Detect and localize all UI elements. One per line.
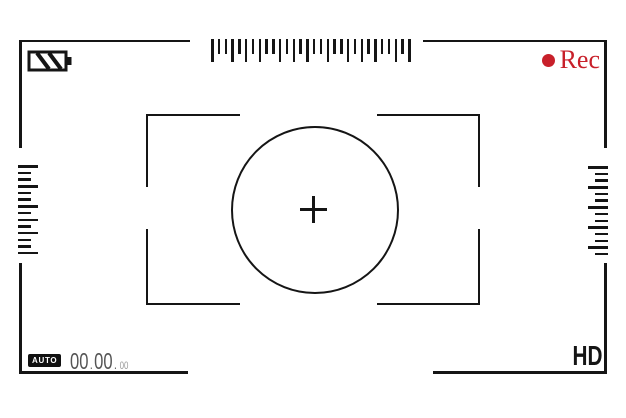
ruler-tick	[18, 178, 31, 181]
ruler-tick	[588, 166, 608, 169]
ruler-tick	[408, 39, 411, 62]
timecode-seconds: 00	[120, 360, 129, 372]
ruler-tick	[595, 193, 608, 196]
outer-bracket-bottom-right-vertical	[604, 263, 607, 374]
ruler-tick	[272, 39, 275, 54]
ruler-tick	[401, 39, 404, 54]
timecode-hours: 00	[70, 348, 88, 374]
outer-bracket-top-left-horizontal	[19, 40, 190, 43]
ruler-tick	[286, 39, 289, 54]
ruler-tick	[18, 225, 31, 228]
ruler-tick	[595, 179, 608, 182]
focus-bracket-top-right-horizontal	[377, 114, 480, 116]
battery-icon	[27, 49, 73, 78]
ruler-tick	[588, 246, 608, 249]
ruler-tick	[299, 39, 302, 54]
ruler-tick	[340, 39, 343, 54]
ruler-tick	[588, 206, 608, 209]
ruler-tick	[361, 39, 364, 62]
ruler-tick	[388, 39, 391, 54]
ruler-tick	[293, 39, 296, 62]
ruler-tick	[595, 220, 608, 223]
focus-bracket-bottom-right-vertical	[478, 229, 480, 305]
auto-mode-badge[interactable]: AUTO	[28, 354, 61, 367]
focus-bracket-top-right-vertical	[478, 114, 480, 187]
crosshair-vertical-bar	[312, 196, 314, 223]
ruler-tick	[259, 39, 262, 62]
ruler-tick	[347, 39, 350, 62]
ruler-tick	[18, 165, 38, 168]
ruler-tick	[18, 252, 38, 255]
ruler-tick	[252, 39, 255, 54]
ruler-tick	[595, 233, 608, 236]
ruler-tick	[231, 39, 234, 62]
ruler-tick	[588, 226, 608, 229]
timecode-separator: .	[90, 356, 93, 372]
ruler-tick	[595, 213, 608, 216]
focus-bracket-bottom-right-horizontal	[377, 303, 480, 305]
ruler-tick	[18, 245, 31, 248]
ruler-tick	[333, 39, 336, 54]
ruler-tick	[18, 232, 38, 235]
left-tick-scale	[18, 165, 38, 254]
ruler-tick	[225, 39, 228, 54]
ruler-tick	[18, 185, 38, 188]
focus-bracket-bottom-left-vertical	[146, 229, 148, 305]
ruler-tick	[18, 239, 31, 242]
outer-bracket-bottom-left-vertical	[19, 263, 22, 374]
ruler-tick	[245, 39, 248, 62]
outer-bracket-top-right-horizontal	[423, 40, 607, 43]
rec-label: Rec	[560, 47, 600, 73]
focus-bracket-top-left-vertical	[146, 114, 148, 187]
rec-indicator[interactable]: Rec	[542, 47, 600, 73]
ruler-tick	[211, 39, 214, 62]
timecode-minutes: 00	[94, 348, 112, 374]
ruler-tick	[306, 39, 309, 62]
ruler-tick	[374, 39, 377, 62]
crosshair-icon	[300, 196, 327, 223]
outer-bracket-top-right-vertical	[604, 40, 607, 148]
ruler-tick	[18, 172, 31, 175]
ruler-tick	[327, 39, 330, 62]
ruler-tick	[320, 39, 323, 54]
right-tick-scale	[588, 166, 608, 255]
ruler-tick	[18, 205, 38, 208]
viewfinder-screen: Rec AUTO 00.00.00 HD	[0, 0, 626, 418]
focus-bracket-top-left-horizontal	[146, 114, 240, 116]
ruler-tick	[395, 39, 398, 62]
focus-bracket-bottom-left-horizontal	[146, 303, 240, 305]
ruler-tick	[313, 39, 316, 54]
top-tick-scale	[211, 39, 411, 62]
ruler-tick	[367, 39, 370, 54]
ruler-tick	[381, 39, 384, 54]
ruler-tick	[18, 198, 31, 201]
ruler-tick	[595, 173, 608, 176]
record-dot-icon	[542, 54, 555, 67]
ruler-tick	[18, 219, 38, 222]
timecode-separator: .	[114, 356, 117, 372]
ruler-tick	[595, 253, 608, 256]
hd-quality-label: HD	[572, 342, 602, 370]
ruler-tick	[595, 240, 608, 243]
ruler-tick	[588, 186, 608, 189]
ruler-tick	[18, 192, 31, 195]
ruler-tick	[595, 199, 608, 202]
ruler-tick	[265, 39, 268, 54]
ruler-tick	[354, 39, 357, 54]
ruler-tick	[18, 212, 31, 215]
outer-bracket-top-left-vertical	[19, 40, 22, 148]
outer-bracket-bottom-right-horizontal	[433, 371, 607, 374]
timecode: 00.00.00	[70, 350, 128, 374]
ruler-tick	[279, 39, 282, 62]
ruler-tick	[238, 39, 241, 54]
ruler-tick	[218, 39, 221, 54]
